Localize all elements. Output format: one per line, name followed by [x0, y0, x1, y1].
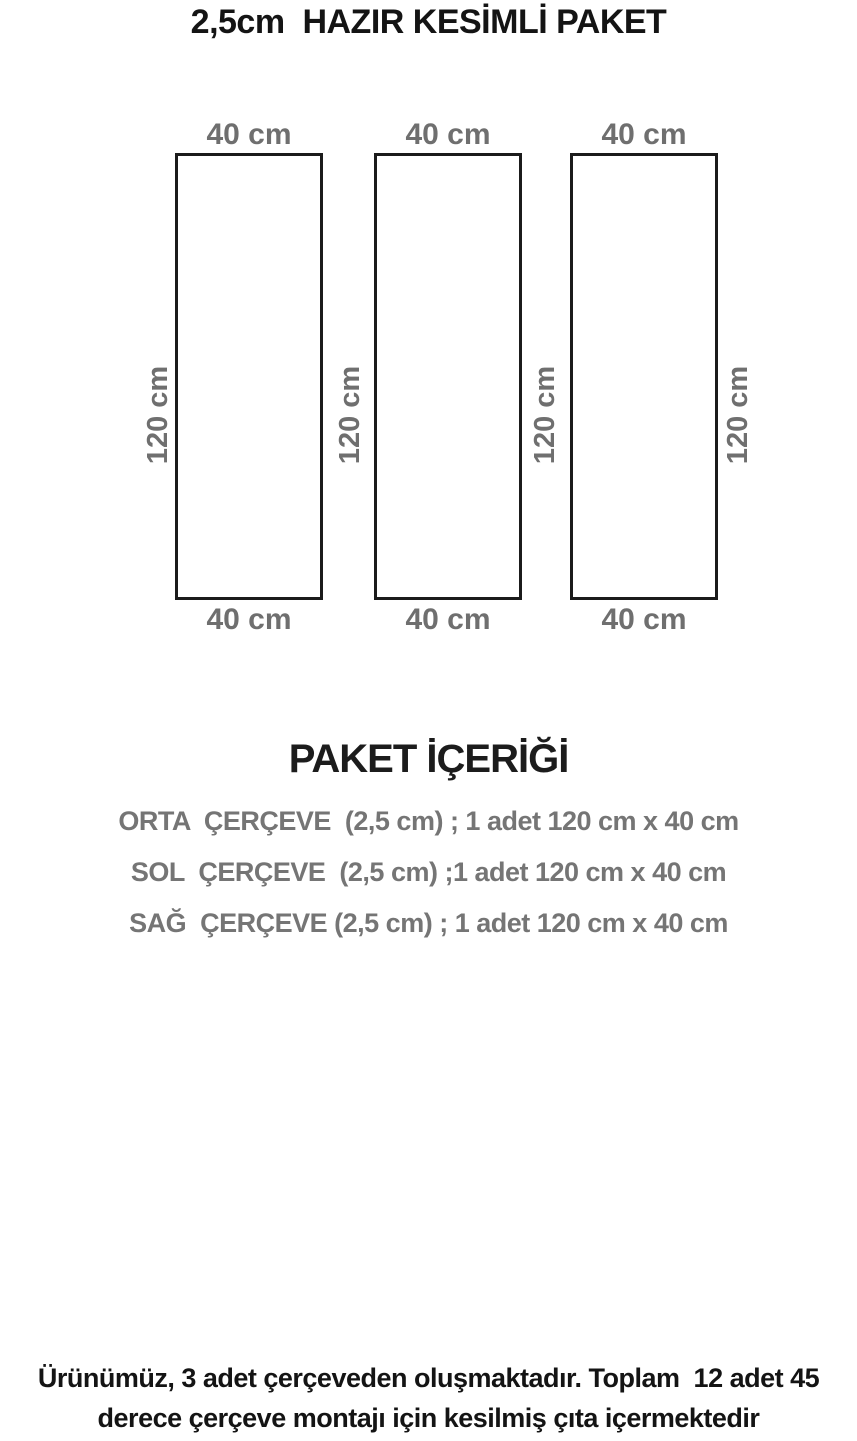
panel-right-top-width-label: 40 cm — [570, 118, 718, 152]
right-edge-height-label: 120 cm — [722, 365, 754, 465]
package-contents-item-sag: SAĞ ÇERÇEVE (2,5 cm) ; 1 adet 120 cm x 4… — [0, 898, 857, 949]
panel-right-height-label: 120 cm — [529, 365, 561, 465]
package-contents-item-sol: SOL ÇERÇEVE (2,5 cm) ;1 adet 120 cm x 40… — [0, 847, 857, 898]
package-contents-list: ORTA ÇERÇEVE (2,5 cm) ; 1 adet 120 cm x … — [0, 796, 857, 949]
package-contents-item-orta: ORTA ÇERÇEVE (2,5 cm) ; 1 adet 120 cm x … — [0, 796, 857, 847]
product-description-line2: derece çerçeve montajı için kesilmiş çıt… — [0, 1398, 857, 1438]
page: 2,5cm HAZIR KESİMLİ PAKET 40 cm 40 cm 40… — [0, 0, 857, 1441]
panel-right-rect — [570, 153, 718, 600]
panel-left-height-label: 120 cm — [142, 365, 174, 465]
panel-right-bottom-width-label: 40 cm — [570, 603, 718, 637]
panel-left-bottom-width-label: 40 cm — [175, 603, 323, 637]
panel-center-height-label: 120 cm — [334, 365, 366, 465]
panel-center-bottom-width-label: 40 cm — [374, 603, 522, 637]
product-description: Ürünümüz, 3 adet çerçeveden oluşmaktadır… — [0, 1358, 857, 1438]
panel-center-rect — [374, 153, 522, 600]
panel-center-top-width-label: 40 cm — [374, 118, 522, 152]
package-contents-heading: PAKET İÇERİĞİ — [0, 733, 857, 785]
panel-left-rect — [175, 153, 323, 600]
page-title: 2,5cm HAZIR KESİMLİ PAKET — [0, 0, 857, 44]
product-description-line1: Ürünümüz, 3 adet çerçeveden oluşmaktadır… — [0, 1358, 857, 1398]
panel-left-top-width-label: 40 cm — [175, 118, 323, 152]
